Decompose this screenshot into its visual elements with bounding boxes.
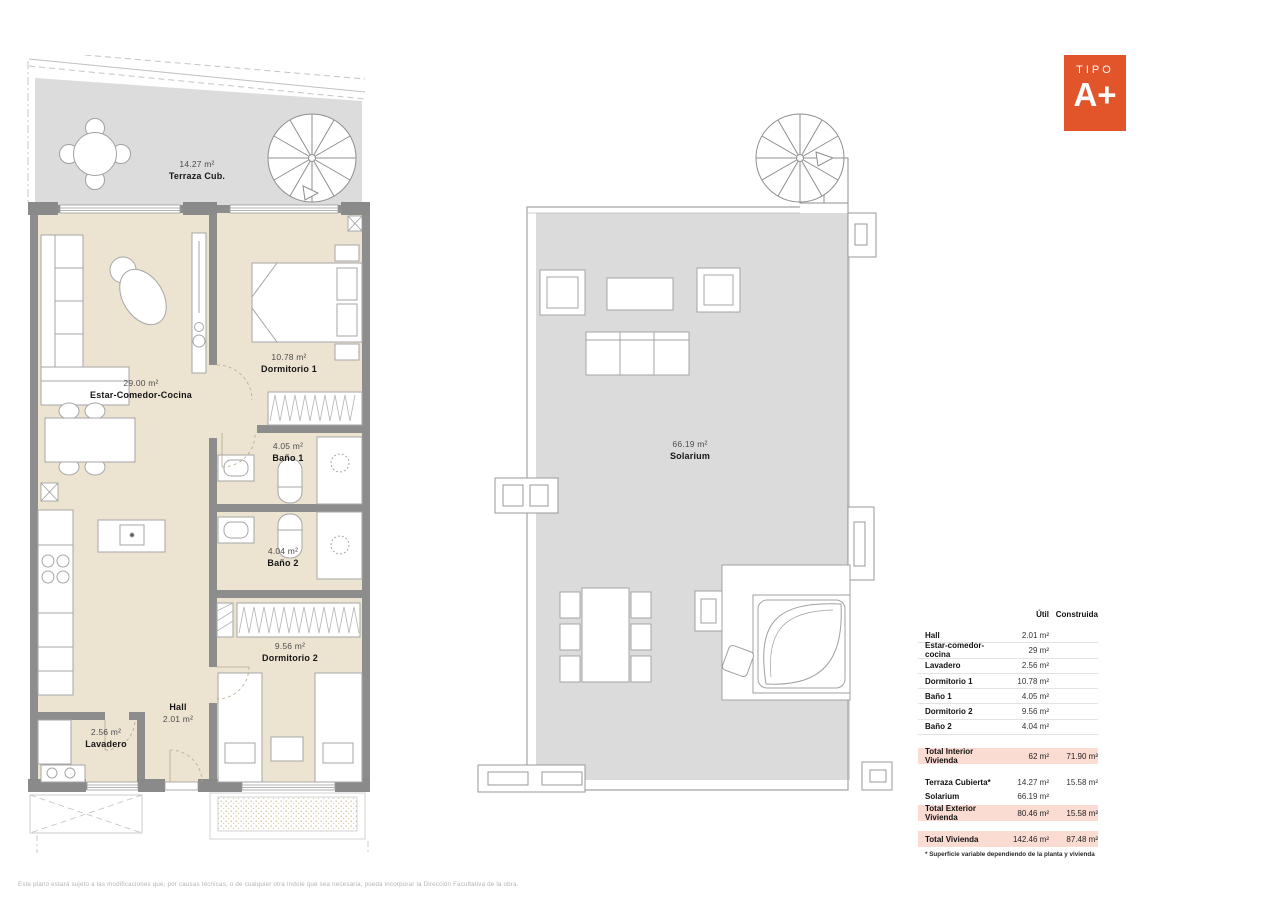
total-exterior-row: Total Exterior Vivienda 80.46 m² 15.58 m… (918, 805, 1098, 821)
badge-type-letter: A+ (1064, 76, 1126, 114)
table-footnote: * Superficie variable dependiendo de la … (918, 851, 1098, 858)
table-header: Útil Construida (918, 606, 1098, 622)
label-lavadero: 2.56 m² Lavadero (85, 726, 127, 750)
closet-dorm2 (217, 603, 360, 637)
closet-dorm1 (268, 392, 362, 425)
surfaces-table: Útil Construida Hall 2.01 m² Estar-comed… (918, 606, 1098, 858)
col-construida: Construida (1049, 610, 1098, 619)
spiral-staircase-icon (756, 114, 848, 203)
floor-plan-sheet: 14.27 m² Terraza Cub. 29.00 m² Estar-Com… (0, 0, 1280, 905)
estar-name: Estar-Comedor-Cocina (90, 389, 192, 401)
table-row: Dormitorio 1 10.78 m² (918, 674, 1098, 689)
total-interior-row: Total Interior Vivienda 62 m² 71.90 m² (918, 748, 1098, 764)
table-row: Estar-comedor-cocina 29 m² (918, 643, 1098, 658)
table-row: Lavadero 2.56 m² (918, 659, 1098, 674)
spiral-staircase-icon (268, 114, 356, 202)
bano1-name: Baño 1 (272, 452, 303, 464)
label-solarium: 66.19 m² Solarium (670, 438, 710, 462)
table-row: Baño 2 4.04 m² (918, 720, 1098, 735)
terraza-name: Terraza Cub. (169, 170, 225, 182)
bano1-area: 4.05 m² (272, 440, 303, 452)
dormitorio1-name: Dormitorio 1 (261, 363, 317, 375)
type-badge: TIPO A+ (1064, 55, 1126, 131)
tall-cupboard (192, 233, 206, 373)
exterior-rows: Terraza Cubierta* 14.27 m² 15.58 m² Sola… (918, 776, 1098, 803)
label-estar: 29.00 m² Estar-Comedor-Cocina (90, 377, 192, 401)
table-row: Dormitorio 2 9.56 m² (918, 704, 1098, 719)
terraza-area: 14.27 m² (169, 158, 225, 170)
interior-rows: Hall 2.01 m² Estar-comedor-cocina 29 m² … (918, 628, 1098, 735)
table-row: Terraza Cubierta* 14.27 m² 15.58 m² (918, 776, 1098, 790)
dormitorio2-area: 9.56 m² (262, 640, 318, 652)
patio-gravel (210, 793, 365, 839)
table-row: Solarium 66.19 m² (918, 790, 1098, 804)
bano2-name: Baño 2 (267, 557, 298, 569)
bano2-area: 4.04 m² (267, 545, 298, 557)
hall-name: Hall (163, 701, 193, 713)
label-terraza: 14.27 m² Terraza Cub. (169, 158, 225, 182)
dormitorio1-area: 10.78 m² (261, 351, 317, 363)
solarium-area-label: 66.19 m² (670, 438, 710, 450)
badge-tipo-text: TIPO (1064, 64, 1126, 76)
table-row: Baño 1 4.05 m² (918, 689, 1098, 704)
service-boxes (848, 213, 892, 790)
label-dormitorio2: 9.56 m² Dormitorio 2 (262, 640, 318, 664)
label-hall: Hall 2.01 m² (163, 701, 193, 725)
dining-set (560, 588, 651, 682)
solarium-name: Solarium (670, 450, 710, 462)
estar-area: 29.00 m² (90, 377, 192, 389)
total-vivienda-row: Total Vivienda 142.46 m² 87.48 m² (918, 831, 1098, 847)
label-dormitorio1: 10.78 m² Dormitorio 1 (261, 351, 317, 375)
lavadero-area: 2.56 m² (85, 726, 127, 738)
hall-area: 2.01 m² (163, 713, 193, 725)
lavadero-name: Lavadero (85, 738, 127, 750)
col-util: Útil (997, 610, 1049, 619)
label-bano2: 4.04 m² Baño 2 (267, 545, 298, 569)
plan-disclaimer: Este plano estará sujeto a las modificac… (18, 881, 519, 888)
dormitorio2-name: Dormitorio 2 (262, 652, 318, 664)
label-bano1: 4.05 m² Baño 1 (272, 440, 303, 464)
